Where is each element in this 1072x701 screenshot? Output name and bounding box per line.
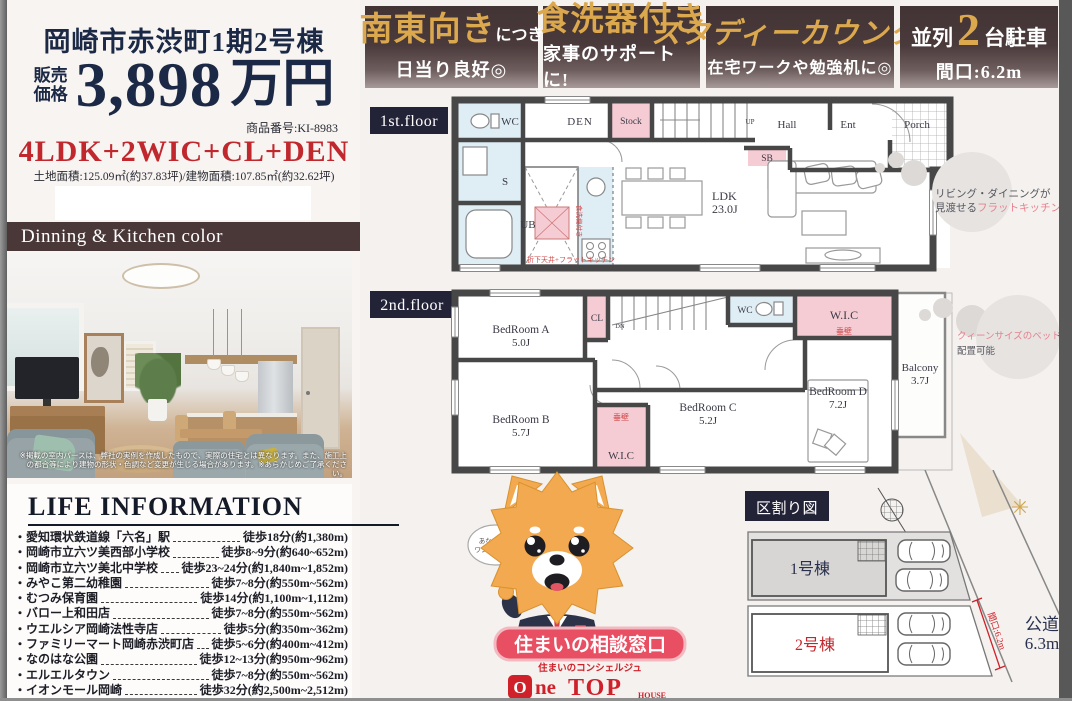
consultation-banner: 住まいの相談窓口 xyxy=(495,628,685,660)
life-item: イオンモール岡崎徒歩32分(約2,500m~2,512m) xyxy=(14,683,348,698)
svg-text:7.2J: 7.2J xyxy=(829,399,848,411)
lot1-label: 1号棟 xyxy=(790,560,830,578)
product-number: 商品番号:KI-8983 xyxy=(8,119,338,136)
floor2-label: 2nd.floor xyxy=(370,291,454,318)
room-label-wc2: WC xyxy=(737,306,752,316)
svg-text:住まいの相談窓口: 住まいの相談窓口 xyxy=(514,633,666,656)
room-label-sb: SB xyxy=(761,154,773,164)
road-label: 公道 xyxy=(1025,615,1059,634)
balcony xyxy=(895,293,945,437)
interior-photo: ※掲載の室内パースは、弊社の実例を作成したもので、実際の住宅とは異なります。また… xyxy=(7,251,352,478)
price-unit: 万円 xyxy=(230,57,334,113)
lot-map-label: 区割り図 xyxy=(745,491,829,521)
lot2-label: 2号棟 xyxy=(795,636,835,654)
svg-text:フラットキッチン: フラットキッチン xyxy=(977,202,1061,214)
blank-address-box xyxy=(55,186,311,220)
ceiling-light xyxy=(122,263,200,289)
price-label: 販売 価格 xyxy=(34,66,68,104)
svg-text:見渡せる: 見渡せる xyxy=(935,201,977,214)
dog-eye xyxy=(525,536,546,557)
onetop-logo: 住まいのコンシェルジュ O ne TOP HOUSE xyxy=(508,662,666,701)
bathtub xyxy=(466,210,512,258)
room-label-ldk: LDK xyxy=(712,189,737,203)
dog-tongue xyxy=(551,583,564,591)
room-label-s: S xyxy=(502,176,508,188)
floorplan-1f: WC S UB DEN Stock UP Hall SB Ent Porch L… xyxy=(360,95,1072,287)
dog-nose xyxy=(550,555,565,566)
potted-plant xyxy=(135,353,181,403)
note-ceiling: 折下天井+フラットキッチン xyxy=(527,255,615,264)
label-dn: DN xyxy=(615,323,625,330)
kitchen-sink xyxy=(587,178,605,196)
room-label-wc: WC xyxy=(501,116,519,128)
svg-text:配置可能: 配置可能 xyxy=(957,345,996,357)
life-item: 岡崎市立六ツ美北中学校徒歩23~24分(約1,840m~1,852m) xyxy=(14,561,348,576)
stairs-2f xyxy=(612,293,728,330)
closet xyxy=(585,293,608,340)
refrigerator xyxy=(258,361,293,417)
room-label-bedroom-d: BedRoom D xyxy=(809,386,867,398)
life-item: バロー上和田店徒歩7~8分(約550m~562m) xyxy=(14,606,348,621)
label-up: UP xyxy=(746,118,755,126)
life-information-list: 愛知環状鉄道線「六名」駅徒歩18分(約1,380m) 岡崎市立六ツ美西部小学校徒… xyxy=(14,530,348,698)
life-information-title: LIFE INFORMATION xyxy=(28,492,399,526)
outer-wall-2f xyxy=(455,293,895,470)
pendant-light xyxy=(213,309,214,361)
label-tarekabe-bottom: 垂壁 xyxy=(613,412,629,422)
bed xyxy=(808,380,868,462)
room-label-bedroom-b: BedRoom B xyxy=(492,414,550,426)
mascot-block: あなたの、 ワンストップ! xyxy=(450,470,740,701)
north-mark xyxy=(878,488,908,536)
svg-text:クィーンサイズのベット: クィーンサイズのベット xyxy=(957,330,1061,342)
photo-band-title: Dinning & Kitchen color xyxy=(7,222,360,251)
room-label-porch: Porch xyxy=(904,119,930,131)
wc-2f xyxy=(728,293,795,325)
room-label-bedroom-c: BedRoom C xyxy=(679,402,737,414)
price-block: 販売 価格 3,898 万円 xyxy=(8,52,360,118)
life-item: むつみ保育園徒歩14分(約1,100m~1,112m) xyxy=(14,591,348,606)
svg-text:5.7J: 5.7J xyxy=(512,427,531,439)
washer xyxy=(463,147,487,175)
room-label-den: DEN xyxy=(567,116,593,128)
svg-text:住まいのコンシェルジュ: 住まいのコンシェルジュ xyxy=(538,662,642,674)
svg-text:5.2J: 5.2J xyxy=(699,415,718,427)
page-edge-right xyxy=(1059,0,1072,701)
room-label-bedroom-a: BedRoom A xyxy=(492,324,550,336)
room-label-wic-bottom: W.I.C xyxy=(608,450,634,462)
callout-queen-bed: クィーンサイズのベット も 配置可能 xyxy=(919,295,1067,379)
road-width-label: 6.3m xyxy=(1025,634,1059,653)
life-item: エルエルタウン徒歩7~8分(約550m~562m) xyxy=(14,668,348,683)
toilet-1f xyxy=(471,114,489,128)
svg-text:3.7J: 3.7J xyxy=(911,375,930,387)
svg-text:5.0J: 5.0J xyxy=(512,337,531,349)
room-label-balcony: Balcony xyxy=(902,362,939,374)
page-edge-left xyxy=(0,0,7,701)
room-label-cl: CL xyxy=(591,314,603,324)
life-item: 愛知環状鉄道線「六名」駅徒歩18分(約1,380m) xyxy=(14,530,348,545)
banner-southeast-facing: 南東向きにつき 日当り良好◎ xyxy=(365,6,538,88)
dog-eye xyxy=(569,536,590,557)
label-tarekabe-top: 垂壁 xyxy=(836,326,852,336)
svg-text:O: O xyxy=(513,678,526,697)
life-item: ウエルシア岡崎法性寺店徒歩5分(約350m~362m) xyxy=(14,622,348,637)
room-label-hall: Hall xyxy=(778,119,797,131)
door xyxy=(301,327,340,449)
svg-text:ne: ne xyxy=(535,675,556,699)
banner-study-counter: スタディーカウンター 在宅ワークや勉強机に◎ xyxy=(706,6,894,88)
note-dishwasher: 食洗機付き xyxy=(575,205,584,238)
frontage-label: 間口:6.2m xyxy=(986,611,1008,651)
life-item: 岡崎市立六ツ美西部小学校徒歩8~9分(約640~652m) xyxy=(14,545,348,560)
room-label-ldk-size: 23.0J xyxy=(712,202,738,216)
toilet-2f xyxy=(756,302,783,316)
room-label-ub: UB xyxy=(520,219,535,231)
wic-bottom xyxy=(595,405,648,470)
land-building-area: 土地面積:125.09㎡(約37.83坪)/建物面積:107.85㎡(約32.6… xyxy=(8,168,360,184)
photo-disclaimer: ※掲載の室内パースは、弊社の実例を作成したもので、実際の住宅とは異なります。また… xyxy=(19,451,347,478)
flyer-page: 岡崎市赤渋町1期2号棟 販売 価格 3,898 万円 商品番号:KI-8983 … xyxy=(0,0,1072,701)
price-value: 3,898 xyxy=(76,55,223,115)
banner-parking: 並列2台駐車 間口:6.2m xyxy=(900,6,1058,88)
life-item: なのはな公園徒歩12~13分(約950m~962m) xyxy=(14,652,348,667)
life-item: ファミリーマート岡崎赤渋町店徒歩5~6分(約400m~412m) xyxy=(14,637,348,652)
svg-text:リビング・ダイニングが: リビング・ダイニングが xyxy=(935,187,1051,200)
wic-top xyxy=(795,293,893,338)
floor-layout: 4LDK+2WIC+CL+DEN xyxy=(8,135,360,169)
room-label-stock: Stock xyxy=(620,117,642,127)
television xyxy=(15,357,79,399)
room-label-ent: Ent xyxy=(840,119,855,131)
room-label-wic-top: W.I.C xyxy=(830,308,858,322)
life-item: みやこ第二幼稚園徒歩7~8分(約550m~562m) xyxy=(14,576,348,591)
